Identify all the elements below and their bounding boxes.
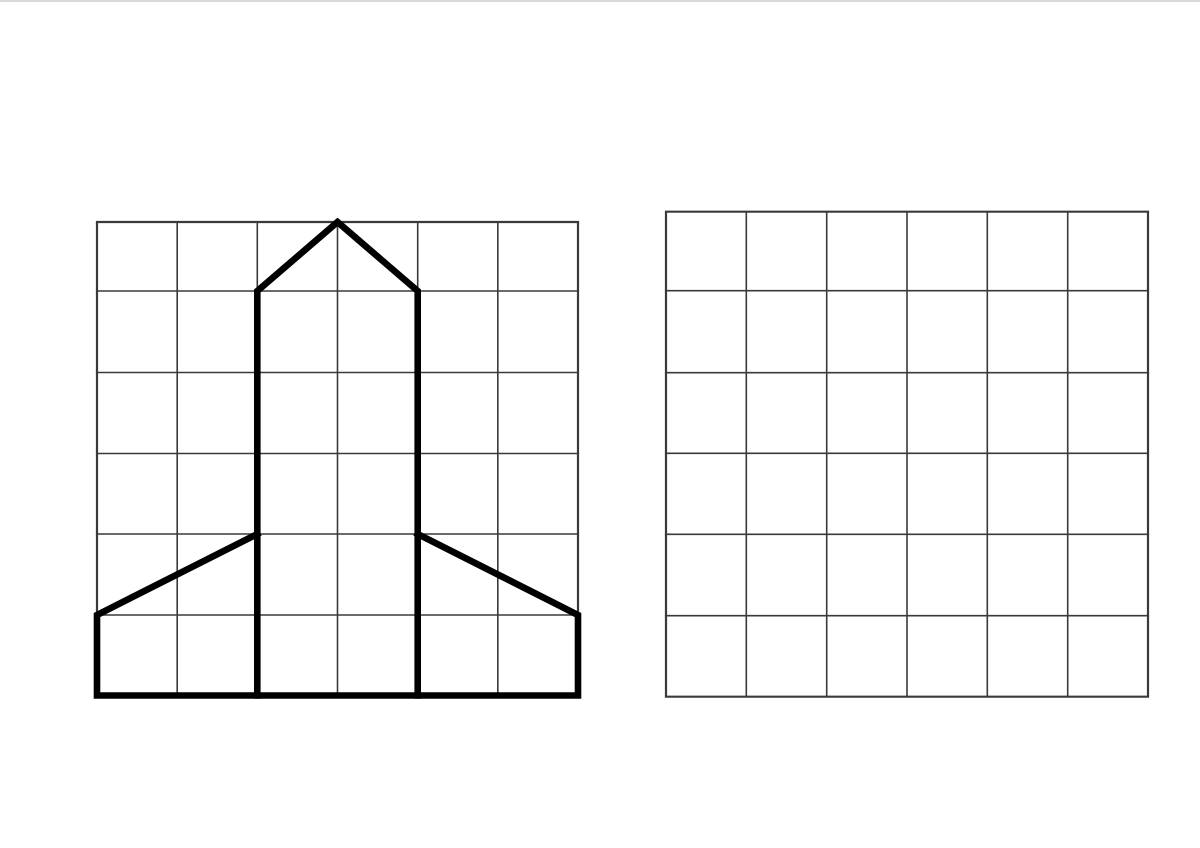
model-grid — [96, 222, 579, 696]
practice-grid — [665, 212, 1149, 697]
grid-copy-worksheet — [0, 0, 1200, 848]
worksheet-page — [0, 0, 1200, 848]
